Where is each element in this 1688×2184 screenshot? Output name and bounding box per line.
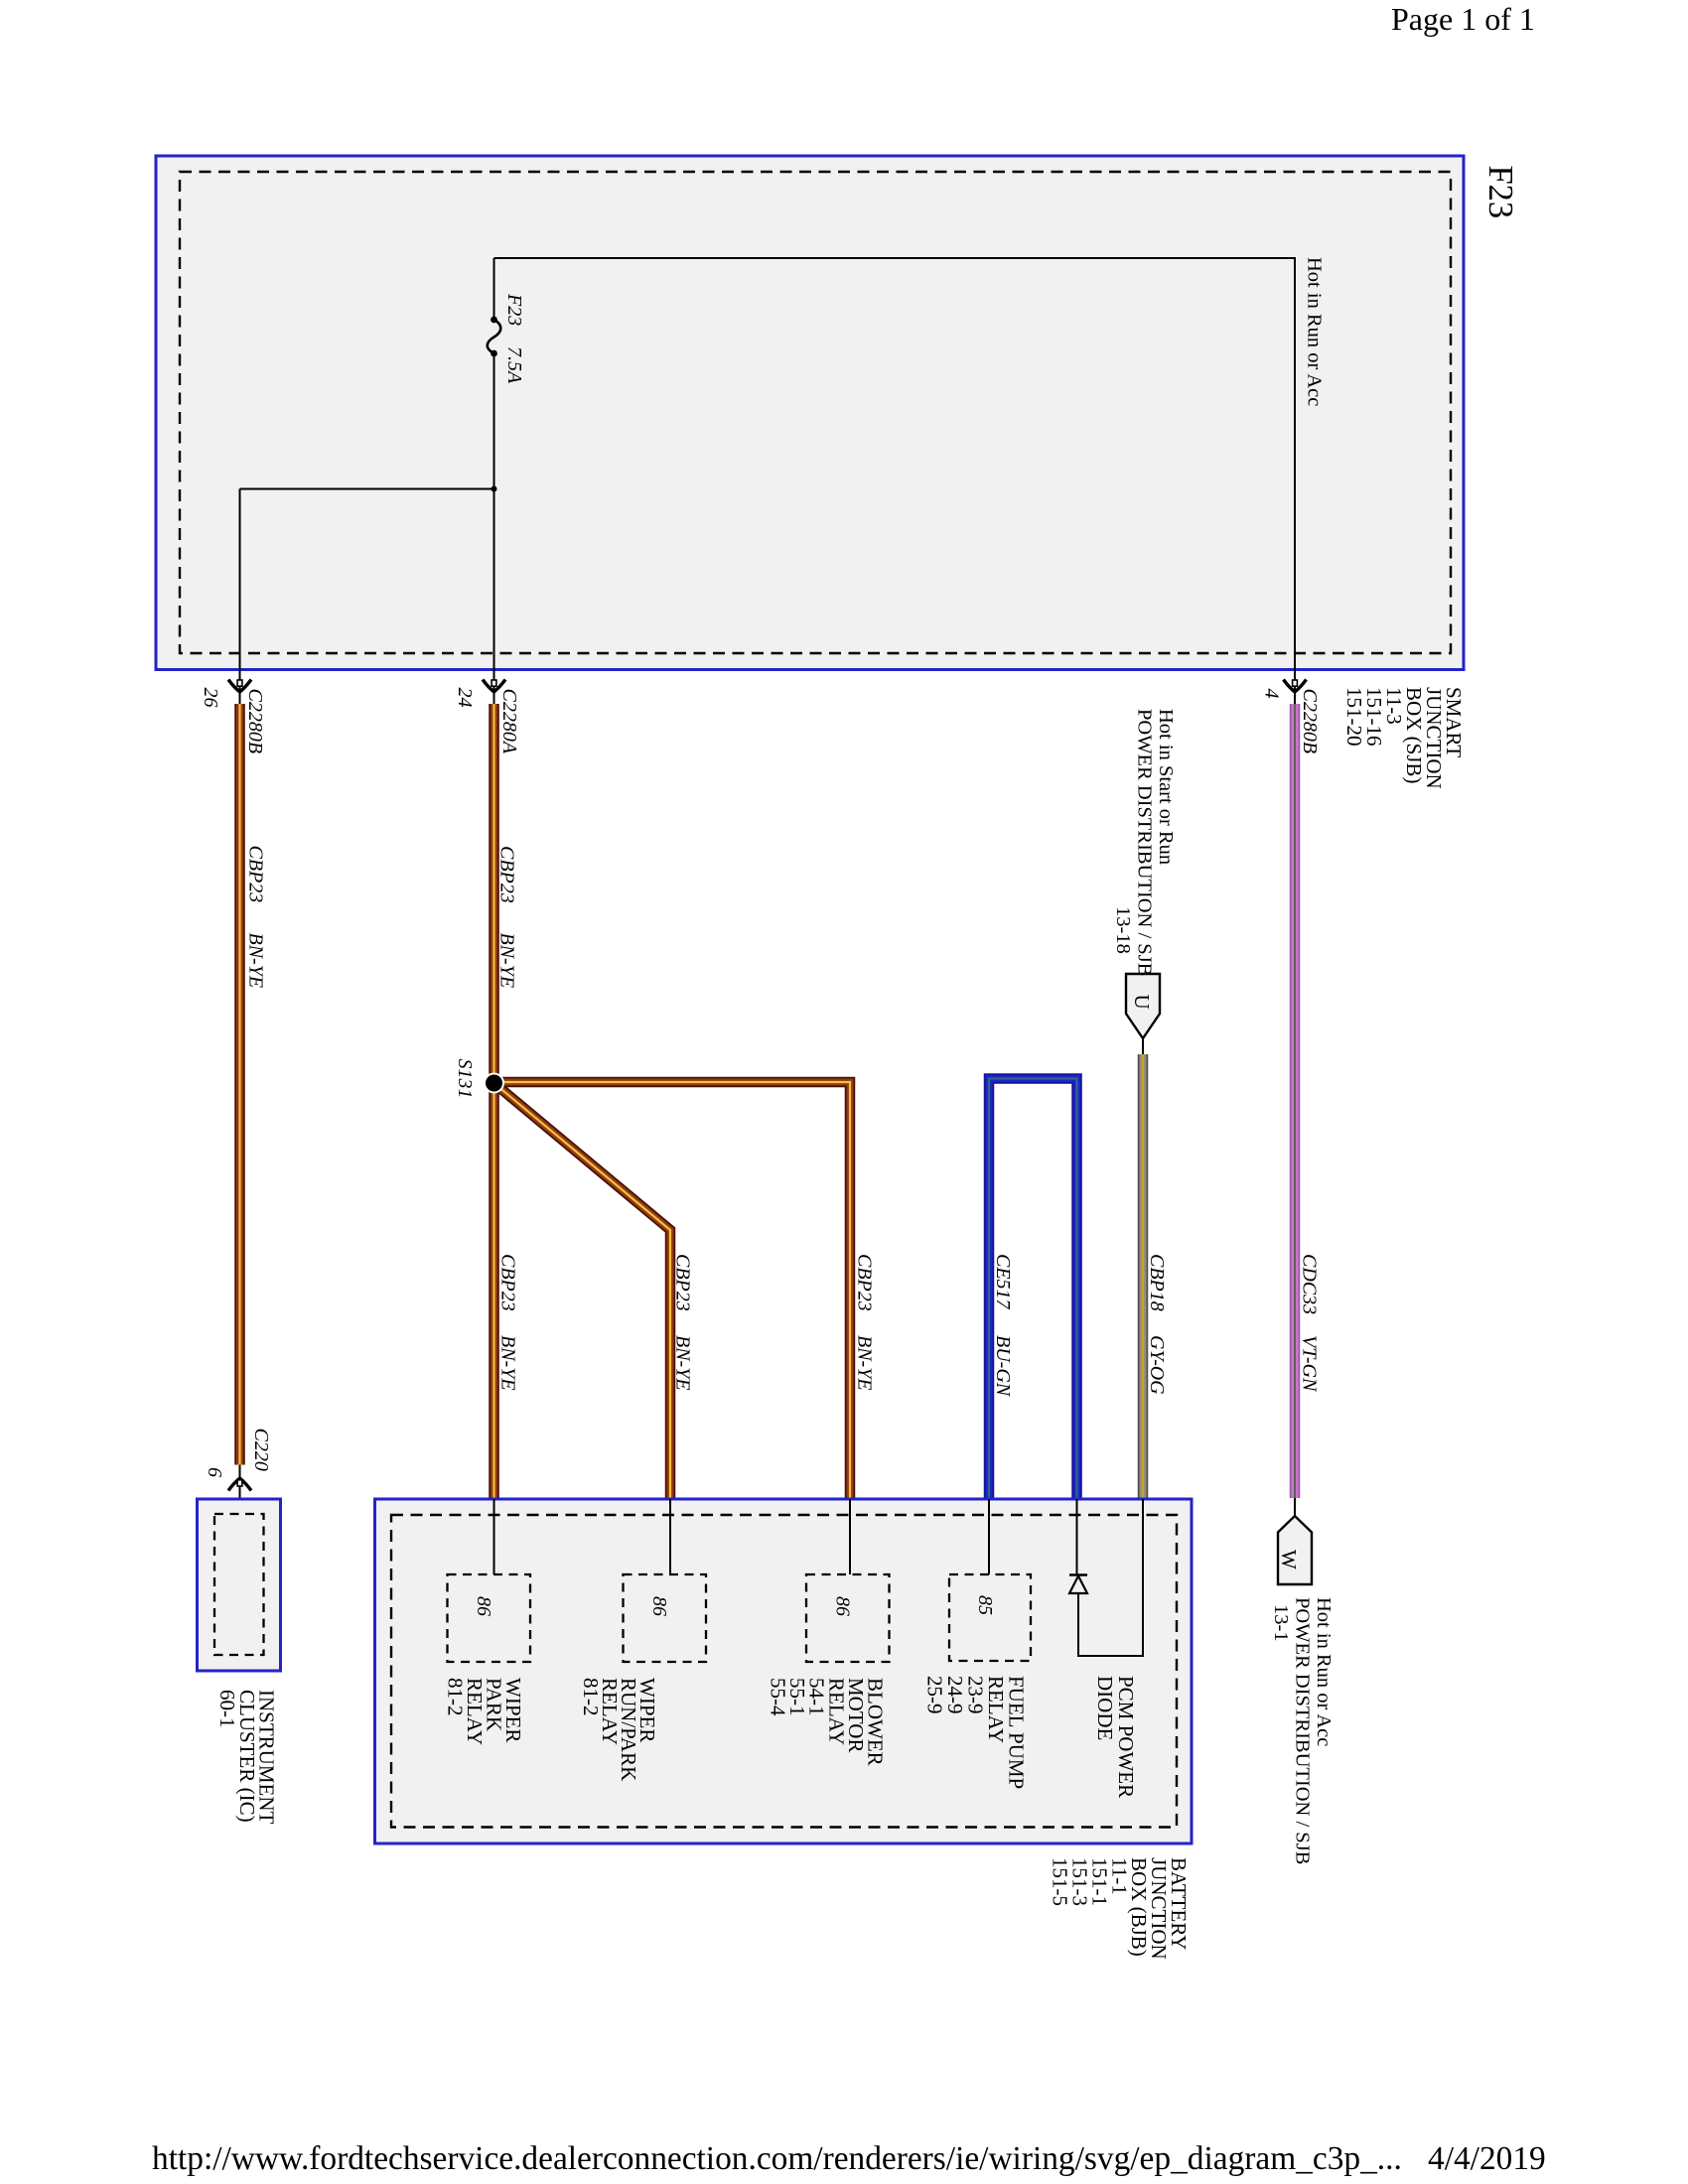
svg-text:W: W — [1277, 1550, 1301, 1570]
svg-text:CE517: CE517 — [992, 1254, 1014, 1310]
svg-text:http://www.fordtechservice.dea: http://www.fordtechservice.dealerconnect… — [152, 2140, 1402, 2177]
svg-text:Hot in Run or Acc: Hot in Run or Acc — [1313, 1597, 1335, 1746]
svg-text:86: 86 — [648, 1596, 670, 1616]
svg-text:Hot in Run or Acc: Hot in Run or Acc — [1304, 257, 1326, 406]
svg-text:25-9: 25-9 — [923, 1676, 947, 1714]
svg-text:POWER DISTRIBUTION / SJB: POWER DISTRIBUTION / SJB — [1292, 1597, 1314, 1864]
svg-text:DIODE: DIODE — [1093, 1676, 1117, 1740]
svg-text:60-1: 60-1 — [215, 1690, 239, 1728]
svg-text:24: 24 — [454, 688, 476, 708]
svg-text:Hot in Start or Run: Hot in Start or Run — [1155, 709, 1177, 865]
svg-text:81-2: 81-2 — [444, 1678, 468, 1716]
svg-text:7.5A: 7.5A — [503, 346, 525, 384]
svg-text:CBP23: CBP23 — [245, 846, 267, 903]
svg-text:4/4/2019: 4/4/2019 — [1428, 2140, 1546, 2177]
svg-text:BN-YE: BN-YE — [497, 1335, 519, 1391]
svg-text:Page 1 of 1: Page 1 of 1 — [1391, 1, 1535, 37]
svg-text:VT-GN: VT-GN — [1299, 1335, 1321, 1393]
svg-text:BU-GN: BU-GN — [992, 1335, 1014, 1398]
svg-text:85: 85 — [974, 1595, 996, 1615]
svg-text:F23: F23 — [503, 293, 525, 326]
svg-text:BN-YE: BN-YE — [496, 933, 518, 989]
svg-text:CBP23: CBP23 — [496, 846, 518, 903]
svg-text:4: 4 — [1261, 689, 1283, 699]
svg-text:151-5: 151-5 — [1049, 1857, 1072, 1906]
svg-text:CDC33: CDC33 — [1299, 1254, 1321, 1314]
svg-text:13-18: 13-18 — [1112, 906, 1134, 954]
svg-text:C220: C220 — [250, 1429, 272, 1471]
svg-text:C2280A: C2280A — [498, 689, 520, 754]
svg-text:86: 86 — [473, 1596, 494, 1616]
svg-text:C2280B: C2280B — [1299, 689, 1321, 754]
svg-text:86: 86 — [832, 1596, 854, 1616]
svg-text:POWER DISTRIBUTION / SJB: POWER DISTRIBUTION / SJB — [1134, 709, 1156, 976]
svg-text:C2280B: C2280B — [244, 689, 266, 754]
svg-text:13-1: 13-1 — [1270, 1604, 1292, 1642]
svg-text:S131: S131 — [454, 1059, 476, 1099]
svg-text:CBP23: CBP23 — [854, 1254, 876, 1311]
svg-text:151-20: 151-20 — [1342, 687, 1366, 747]
svg-text:26: 26 — [200, 688, 221, 708]
svg-text:6: 6 — [204, 1467, 225, 1477]
svg-text:F23: F23 — [1481, 166, 1519, 219]
svg-text:CBP18: CBP18 — [1146, 1254, 1168, 1311]
svg-text:GY-OG: GY-OG — [1146, 1335, 1168, 1395]
svg-text:BN-YE: BN-YE — [672, 1335, 694, 1391]
svg-text:55-4: 55-4 — [767, 1678, 790, 1716]
svg-text:CBP23: CBP23 — [672, 1254, 694, 1311]
svg-text:CBP23: CBP23 — [497, 1254, 519, 1311]
svg-text:81-2: 81-2 — [579, 1678, 603, 1716]
svg-text:BN-YE: BN-YE — [245, 933, 267, 989]
svg-text:U: U — [1130, 995, 1154, 1010]
svg-text:BN-YE: BN-YE — [854, 1335, 876, 1391]
